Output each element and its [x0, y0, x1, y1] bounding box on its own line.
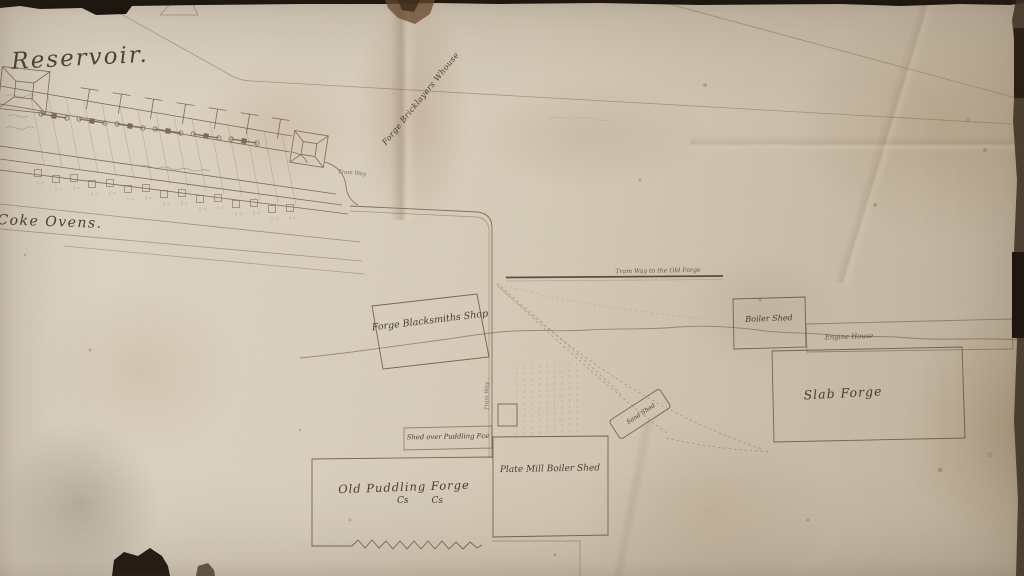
map-photograph: ll Reservoir. Coke Ovens. Forge Bricklay… [0, 0, 1024, 576]
film-grain [0, 0, 1024, 576]
